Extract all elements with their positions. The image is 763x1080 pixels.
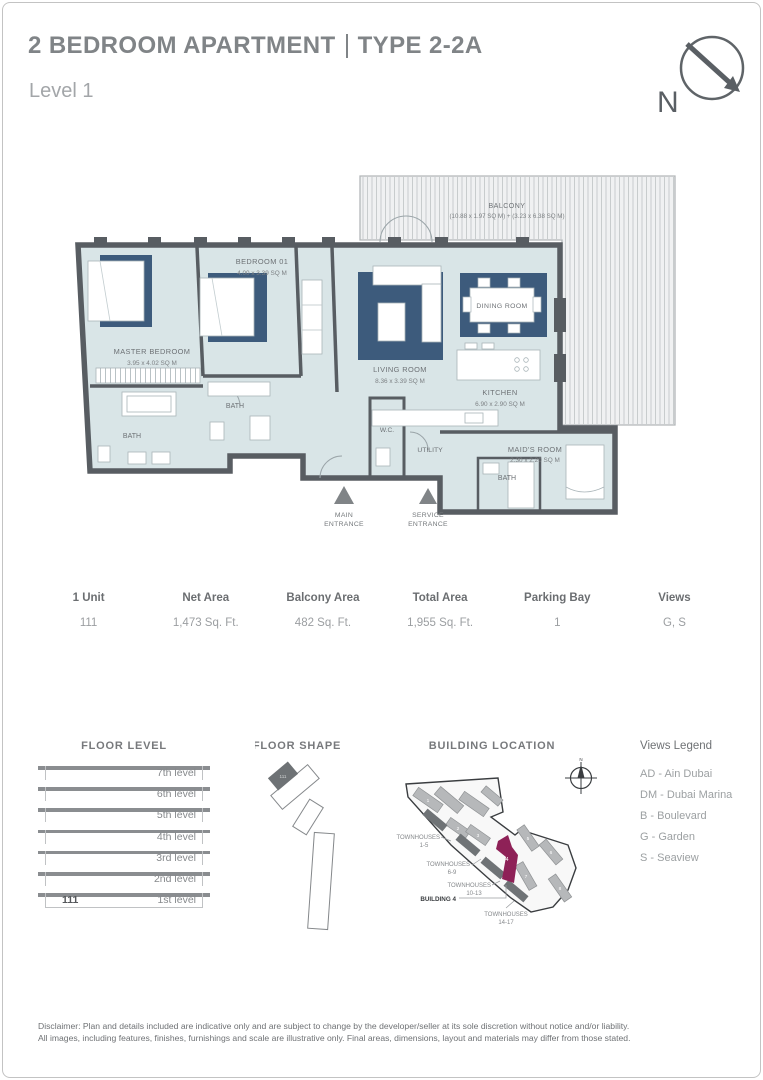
disclaimer-line2: All images, including features, finishes… <box>38 1033 678 1045</box>
north-arrow-icon: N <box>645 28 755 123</box>
col-header: 1 Unit <box>30 592 147 604</box>
wc-label: W.C. <box>380 427 394 434</box>
balcony-label: BALCONY <box>489 203 526 210</box>
col-header: Net Area <box>147 592 264 604</box>
bedroom01-bath-label: BATH <box>226 403 244 410</box>
level-label: 2nd level <box>154 873 196 885</box>
page-title: 2 BEDROOM APARTMENT TYPE 2-2A <box>28 32 483 60</box>
floor-shape-section: FLOOR SHAPE 111 <box>255 735 385 935</box>
north-letter: N <box>657 86 679 119</box>
kitchen-label: KITCHEN <box>482 388 517 397</box>
unit-col-unit: 1 Unit 111 <box>30 592 147 629</box>
unit-col-total-area: Total Area 1,955 Sq. Ft. <box>382 592 499 629</box>
floor-level-row: 5th level <box>38 808 210 826</box>
col-value: 111 <box>30 617 147 629</box>
views-legend-title: Views Legend <box>640 740 760 752</box>
svg-text:8: 8 <box>559 886 562 892</box>
service-entrance-line1: SERVICE <box>412 512 444 519</box>
unit-col-balcony-area: Balcony Area 482 Sq. Ft. <box>264 592 381 629</box>
townhouses-14-17-line2: 14-17 <box>498 920 514 926</box>
master-bedroom-label: MASTER BEDROOM <box>114 347 191 356</box>
maids-room-label: MAID'S ROOM <box>508 445 562 454</box>
views-legend: Views Legend AD - Ain Dubai DM - Dubai M… <box>640 740 760 869</box>
building-location-section: BUILDING LOCATION N 4 1 2 3 <box>388 735 613 940</box>
townhouses-14-17-line1: TOWNHOUSES <box>484 912 528 918</box>
floor-shape-title: FLOOR SHAPE <box>255 740 341 752</box>
floor-level-row: 6th level <box>38 787 210 805</box>
living-room-dims: 8.36 x 3.39 SQ M <box>375 378 425 385</box>
views-legend-list: AD - Ain Dubai DM - Dubai Marina B - Bou… <box>640 764 760 869</box>
col-value: 1 <box>499 617 616 629</box>
unit-col-parking: Parking Bay 1 <box>499 592 616 629</box>
floor-level-section: FLOOR LEVEL 7th level 6th level 5th leve… <box>38 740 210 911</box>
unit-col-net-area: Net Area 1,473 Sq. Ft. <box>147 592 264 629</box>
townhouses-6-9-line2: 6-9 <box>448 870 457 876</box>
dining-room-label: DINING ROOM <box>476 303 527 310</box>
svg-text:3: 3 <box>477 833 480 839</box>
level-label: 6th level <box>157 788 196 800</box>
title-divider <box>346 34 348 58</box>
level-label: 4th level <box>157 831 196 843</box>
service-entrance-line2: ENTRANCE <box>408 521 448 528</box>
unit-number: 111 <box>62 893 78 907</box>
floor-level-row-current: 1111st level <box>38 893 210 911</box>
master-bedroom-dims: 3.95 x 4.02 SQ M <box>127 360 177 367</box>
col-value: 1,473 Sq. Ft. <box>147 617 264 629</box>
balcony-dims: (10.88 x 1.97 SQ M) + (3.23 x 6.38 SQ M) <box>449 213 564 220</box>
floor-level-diagram: 7th level 6th level 5th level 4th level … <box>38 766 210 911</box>
maids-room-dims: 2.30 x 2.20 SQ M <box>510 457 560 464</box>
floor-level-row: 4th level <box>38 830 210 848</box>
building-location-title: BUILDING LOCATION <box>429 740 555 752</box>
level-label: 1st level <box>157 894 196 906</box>
svg-text:7: 7 <box>525 874 528 880</box>
kitchen-dims: 6.90 x 2.90 SQ M <box>475 401 525 408</box>
building-4-number: 4 <box>505 857 508 863</box>
compass-n-label: N <box>579 757 582 762</box>
views-legend-item: DM - Dubai Marina <box>640 785 760 806</box>
level-label: 7th level <box>157 767 196 779</box>
maids-bath-label: BATH <box>498 475 516 482</box>
col-value: G, S <box>616 617 733 629</box>
svg-text:1: 1 <box>427 798 430 804</box>
svg-text:5: 5 <box>527 836 530 842</box>
col-header: Balcony Area <box>264 592 381 604</box>
bedroom01-dims: 4.00 x 3.39 SQ M <box>237 270 287 277</box>
floor-shape-outline <box>271 765 334 930</box>
main-entrance-marker: MAIN ENTRANCE <box>324 486 364 528</box>
living-room-furniture <box>358 266 443 360</box>
views-legend-item: S - Seaview <box>640 848 760 869</box>
unit-info-table: 1 Unit 111 Net Area 1,473 Sq. Ft. Balcon… <box>30 592 733 629</box>
page-subtitle: Level 1 <box>29 80 94 103</box>
title-type: TYPE 2-2A <box>358 32 483 60</box>
col-header: Total Area <box>382 592 499 604</box>
bedroom01-bed <box>200 273 322 354</box>
utility-label: UTILITY <box>417 447 443 454</box>
master-bath-label: BATH <box>123 433 141 440</box>
svg-text:6: 6 <box>550 850 553 856</box>
level-label: 3rd level <box>156 852 196 864</box>
floor-plan: BALCONY (10.88 x 1.97 SQ M) + (3.23 x 6.… <box>70 160 690 550</box>
unit-col-views: Views G, S <box>616 592 733 629</box>
townhouses-10-13-line1: TOWNHOUSES <box>447 883 491 889</box>
living-room-label: LIVING ROOM <box>373 365 427 374</box>
townhouses-1-5-line2: 1-5 <box>420 843 429 849</box>
disclaimer: Disclaimer: Plan and details included ar… <box>38 1021 678 1044</box>
views-legend-item: AD - Ain Dubai <box>640 764 760 785</box>
main-entrance-line1: MAIN <box>335 512 353 519</box>
townhouses-6-9-line1: TOWNHOUSES <box>426 862 470 868</box>
townhouses-10-13-line2: 10-13 <box>466 891 482 897</box>
disclaimer-line1: Disclaimer: Plan and details included ar… <box>38 1021 678 1033</box>
floor-level-title: FLOOR LEVEL <box>38 740 210 752</box>
floor-level-row: 2nd level <box>38 872 210 890</box>
level-label: 5th level <box>157 809 196 821</box>
floor-level-row: 7th level <box>38 766 210 784</box>
main-entrance-line2: ENTRANCE <box>324 521 364 528</box>
col-value: 1,955 Sq. Ft. <box>382 617 499 629</box>
floor-shape-unit-number: 111 <box>280 774 287 779</box>
svg-text:2: 2 <box>457 826 460 832</box>
title-main: 2 BEDROOM APARTMENT <box>28 32 336 60</box>
col-header: Views <box>616 592 733 604</box>
col-value: 482 Sq. Ft. <box>264 617 381 629</box>
building-4-label: BUILDING 4 <box>420 896 456 903</box>
views-legend-item: G - Garden <box>640 827 760 848</box>
col-header: Parking Bay <box>499 592 616 604</box>
compass-icon: N <box>565 757 597 794</box>
views-legend-item: B - Boulevard <box>640 806 760 827</box>
townhouses-1-5-line1: TOWNHOUSES <box>396 835 440 841</box>
bedroom01-label: BEDROOM 01 <box>236 257 288 266</box>
floor-level-row: 3rd level <box>38 851 210 869</box>
